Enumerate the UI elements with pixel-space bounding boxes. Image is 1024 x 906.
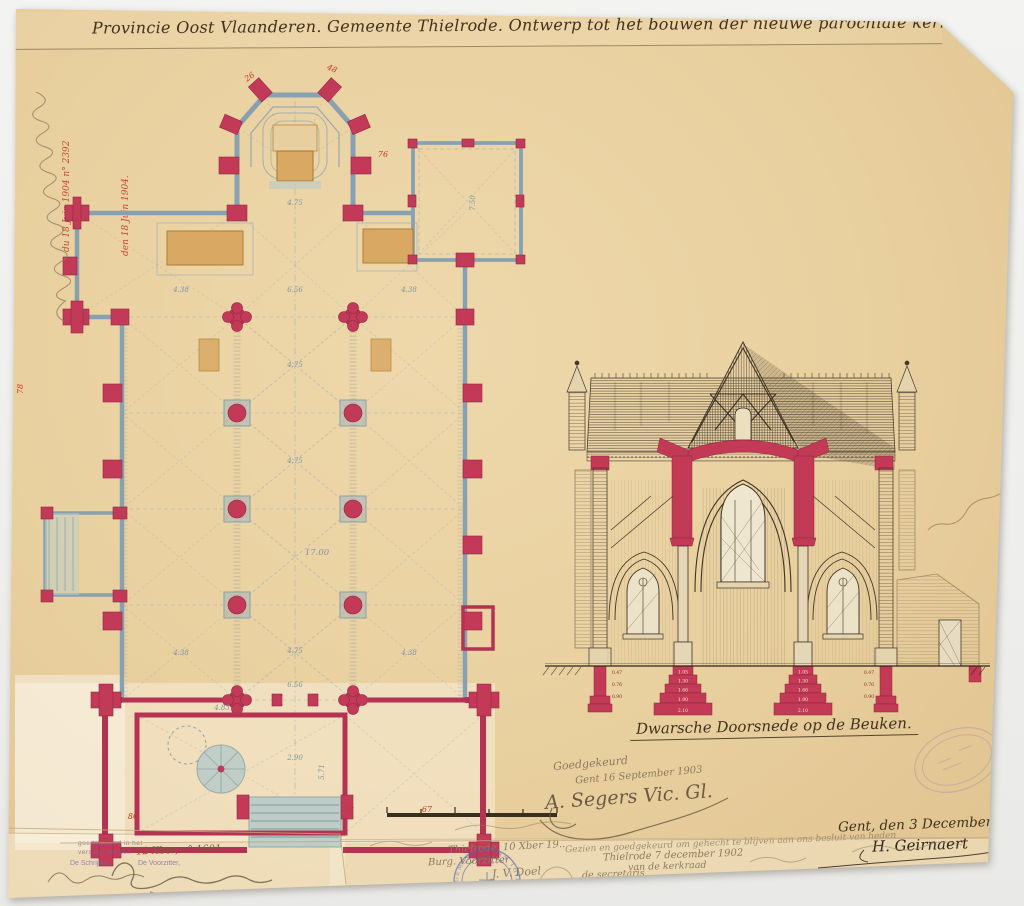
vicar-signature-flourish (540, 798, 728, 839)
church-note-5: F. van de Velde (580, 879, 657, 893)
municipal-stamp: GEMEENTE VAN THIELRODE (454, 849, 520, 906)
left-signatures (48, 863, 272, 897)
embossed-oval-stamp (905, 716, 1009, 805)
architect-signature-flourish (818, 847, 1020, 868)
drawing-sheet: Provincie Oost Vlaanderen. Gemeente Thie… (0, 0, 1024, 906)
owner-signature-vertical (26, 91, 76, 322)
sheet-wrap: Provincie Oost Vlaanderen. Gemeente Thie… (0, 0, 1024, 906)
ministry-stamp-line-2: pour être annexé à l'arrêté royal (0, 0, 9, 9)
annotations-overlay: GEMEENTE VAN THIELRODE (0, 0, 1024, 906)
scanner-background: Provincie Oost Vlaanderen. Gemeente Thie… (0, 0, 1024, 906)
paper-crack (928, 482, 1014, 530)
